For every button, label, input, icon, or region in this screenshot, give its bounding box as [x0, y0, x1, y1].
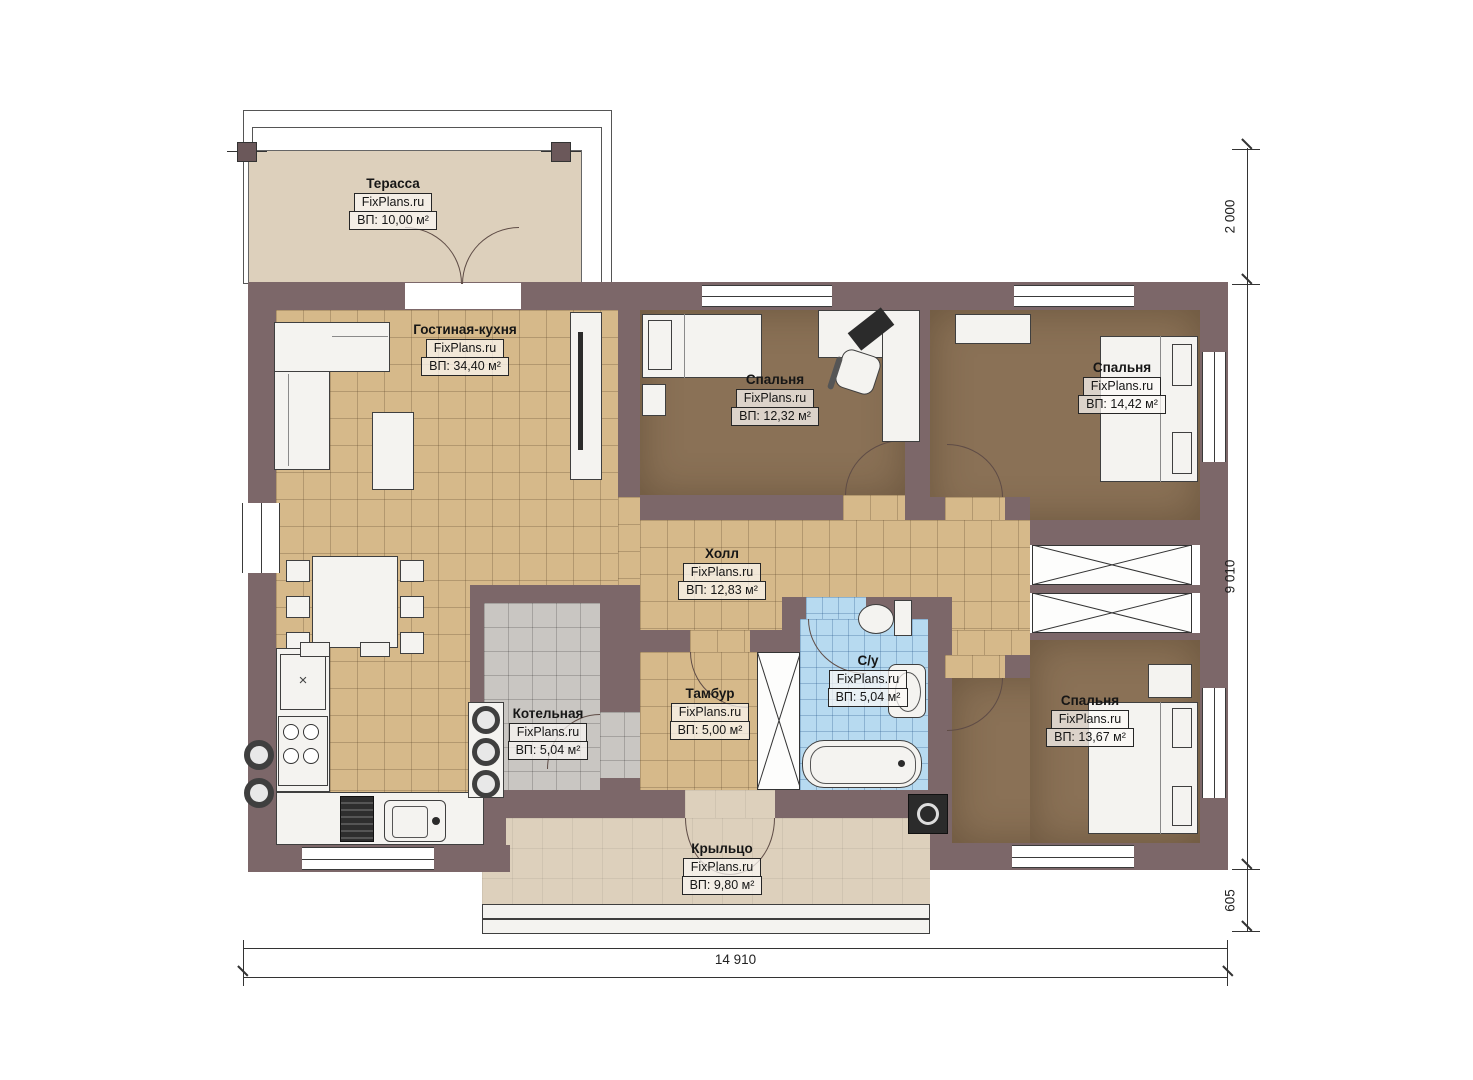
fridge: × [280, 654, 326, 710]
dim-right-ext-1 [1232, 149, 1260, 150]
coffee-table [372, 412, 414, 490]
stove-burner [283, 748, 299, 764]
kitchen-wall-ring [244, 778, 274, 808]
sofa-seam-v [288, 374, 289, 466]
dim-main-depth: 9 010 [1223, 547, 1238, 607]
room-label-living-kitchen: Гостиная-кухня FixPlans.ru ВП: 34,40 м² [375, 322, 555, 376]
wall-living-hall [618, 310, 640, 497]
dining-table [312, 556, 398, 648]
room-name: Спальня [1093, 360, 1151, 375]
room-label-boiler: Котельная FixPlans.ru ВП: 5,04 м² [458, 706, 638, 760]
room-label-terrace: Терасса FixPlans.ru ВП: 10,00 м² [303, 176, 483, 230]
dim-bottom-line-upper [243, 948, 1228, 949]
room-area: ВП: 14,42 м² [1078, 395, 1166, 414]
terrace-post-left [237, 142, 257, 162]
room-area: ВП: 9,80 м² [682, 876, 763, 895]
room-name: Терасса [366, 176, 420, 191]
fridge-mark-icon: × [299, 672, 308, 689]
window-bedroom3-bottom [1012, 845, 1134, 868]
kitchen-faucet [432, 817, 440, 825]
room-name: Гостиная-кухня [413, 322, 516, 337]
room-area: ВП: 12,83 м² [678, 581, 766, 600]
brand-label: FixPlans.ru [354, 193, 433, 212]
dishwasher [340, 796, 374, 842]
door-gap-bedroom2 [945, 497, 1005, 520]
porch-step-1 [482, 904, 930, 919]
terrace-post-right [551, 142, 571, 162]
room-label-bedroom-bottom-right: Спальня FixPlans.ru ВП: 13,67 м² [1000, 693, 1180, 747]
brand-label: FixPlans.ru [1083, 377, 1162, 396]
tv-screen [578, 332, 583, 450]
room-label-hall: Холл FixPlans.ru ВП: 12,83 м² [632, 546, 812, 600]
room-name: Спальня [1061, 693, 1119, 708]
room-name: Крыльцо [691, 841, 752, 856]
dresser [955, 314, 1031, 344]
dim-porch-depth: 605 [1223, 877, 1238, 925]
dim-total-width: 14 910 [243, 952, 1228, 967]
bed-pillow [1172, 432, 1192, 474]
brand-label: FixPlans.ru [683, 858, 762, 877]
wardrobe-bedroom2 [1032, 545, 1192, 585]
door-gap-vestibule [690, 630, 750, 652]
brand-label: FixPlans.ru [426, 339, 505, 358]
sofa-horizontal [274, 322, 390, 372]
room-name: Котельная [513, 706, 584, 721]
wall-bathroom-left [782, 597, 800, 652]
window-bedroom3-right [1202, 688, 1226, 798]
dim-terrace-depth: 2 000 [1223, 187, 1238, 247]
toilet-bowl [858, 604, 894, 634]
nightstand [642, 384, 666, 416]
dim-right-ext-4 [1232, 931, 1260, 932]
dim-right-ext-3 [1232, 869, 1260, 870]
wall-boiler-top [470, 585, 618, 603]
boiler-ring [472, 770, 500, 798]
room-area: ВП: 5,04 м² [828, 688, 909, 707]
stove-burner [283, 724, 299, 740]
kitchen-counter-bottom [276, 792, 484, 845]
window-kitchen-bottom [302, 847, 434, 870]
room-label-porch: Крыльцо FixPlans.ru ВП: 9,80 м² [632, 841, 812, 895]
room-label-bathroom: С/у FixPlans.ru ВП: 5,04 м² [778, 653, 958, 707]
wardrobe-bedroom3 [1032, 593, 1192, 633]
tv-console [570, 312, 602, 480]
washing-machine-door [917, 803, 939, 825]
door-gap-porch [685, 790, 775, 818]
dim-right-line [1247, 148, 1248, 932]
room-label-vestibule: Тамбур FixPlans.ru ВП: 5,00 м² [620, 686, 800, 740]
brand-label: FixPlans.ru [829, 670, 908, 689]
wall-bedroom2-bottom-right [1030, 520, 1200, 545]
kitchen-sink-basin [392, 806, 428, 838]
wall-wardrobe-bottom [1030, 633, 1200, 640]
room-name: Спальня [746, 372, 804, 387]
stove-burner [303, 748, 319, 764]
dining-chair [400, 632, 424, 654]
dining-chair [400, 596, 424, 618]
room-area: ВП: 13,67 м² [1046, 728, 1134, 747]
bar-stool [300, 642, 330, 657]
room-area: ВП: 5,04 м² [508, 741, 589, 760]
room-name: Холл [705, 546, 739, 561]
wall-porch-left [482, 790, 506, 872]
window-bedroom2-top [1014, 285, 1134, 307]
dining-chair [286, 560, 310, 582]
room-label-bedroom-top-right: Спальня FixPlans.ru ВП: 14,42 м² [1032, 360, 1212, 414]
floor-plan: × Терасса FixPlans.ru ВП: [0, 0, 1473, 1080]
wall-wardrobe-mid [1030, 585, 1200, 593]
brand-label: FixPlans.ru [1051, 710, 1130, 729]
dining-chair [286, 596, 310, 618]
room-label-bedroom-top-middle: Спальня FixPlans.ru ВП: 12,32 м² [685, 372, 865, 426]
terrace-door-opening [405, 283, 521, 309]
window-bedroom1-top [702, 285, 832, 307]
toilet-tank [894, 600, 912, 636]
room-name: С/у [857, 653, 878, 668]
door-gap-bathroom [806, 597, 866, 619]
brand-label: FixPlans.ru [736, 389, 815, 408]
room-area: ВП: 5,00 м² [670, 721, 751, 740]
brand-label: FixPlans.ru [671, 703, 750, 722]
bar-stool [360, 642, 390, 657]
room-area: ВП: 10,00 м² [349, 211, 437, 230]
brand-label: FixPlans.ru [683, 563, 762, 582]
window-living-left [242, 503, 280, 573]
dim-bottom-line [243, 977, 1228, 978]
bed-pillow [648, 320, 672, 370]
door-gap-bedroom1 [843, 495, 905, 520]
bed-pillow [1172, 786, 1192, 826]
kitchen-wall-ring [244, 740, 274, 770]
room-area: ВП: 34,40 м² [421, 357, 509, 376]
dim-right-ext-2 [1232, 284, 1260, 285]
dining-chair [400, 560, 424, 582]
room-name: Тамбур [686, 686, 735, 701]
bed-fold-line [684, 314, 685, 378]
brand-label: FixPlans.ru [509, 723, 588, 742]
porch-step-2 [482, 919, 930, 934]
bathtub-faucet [898, 760, 905, 767]
stove-burner [303, 724, 319, 740]
wall-bottom-mid-left [505, 790, 640, 818]
room-area: ВП: 12,32 м² [731, 407, 819, 426]
